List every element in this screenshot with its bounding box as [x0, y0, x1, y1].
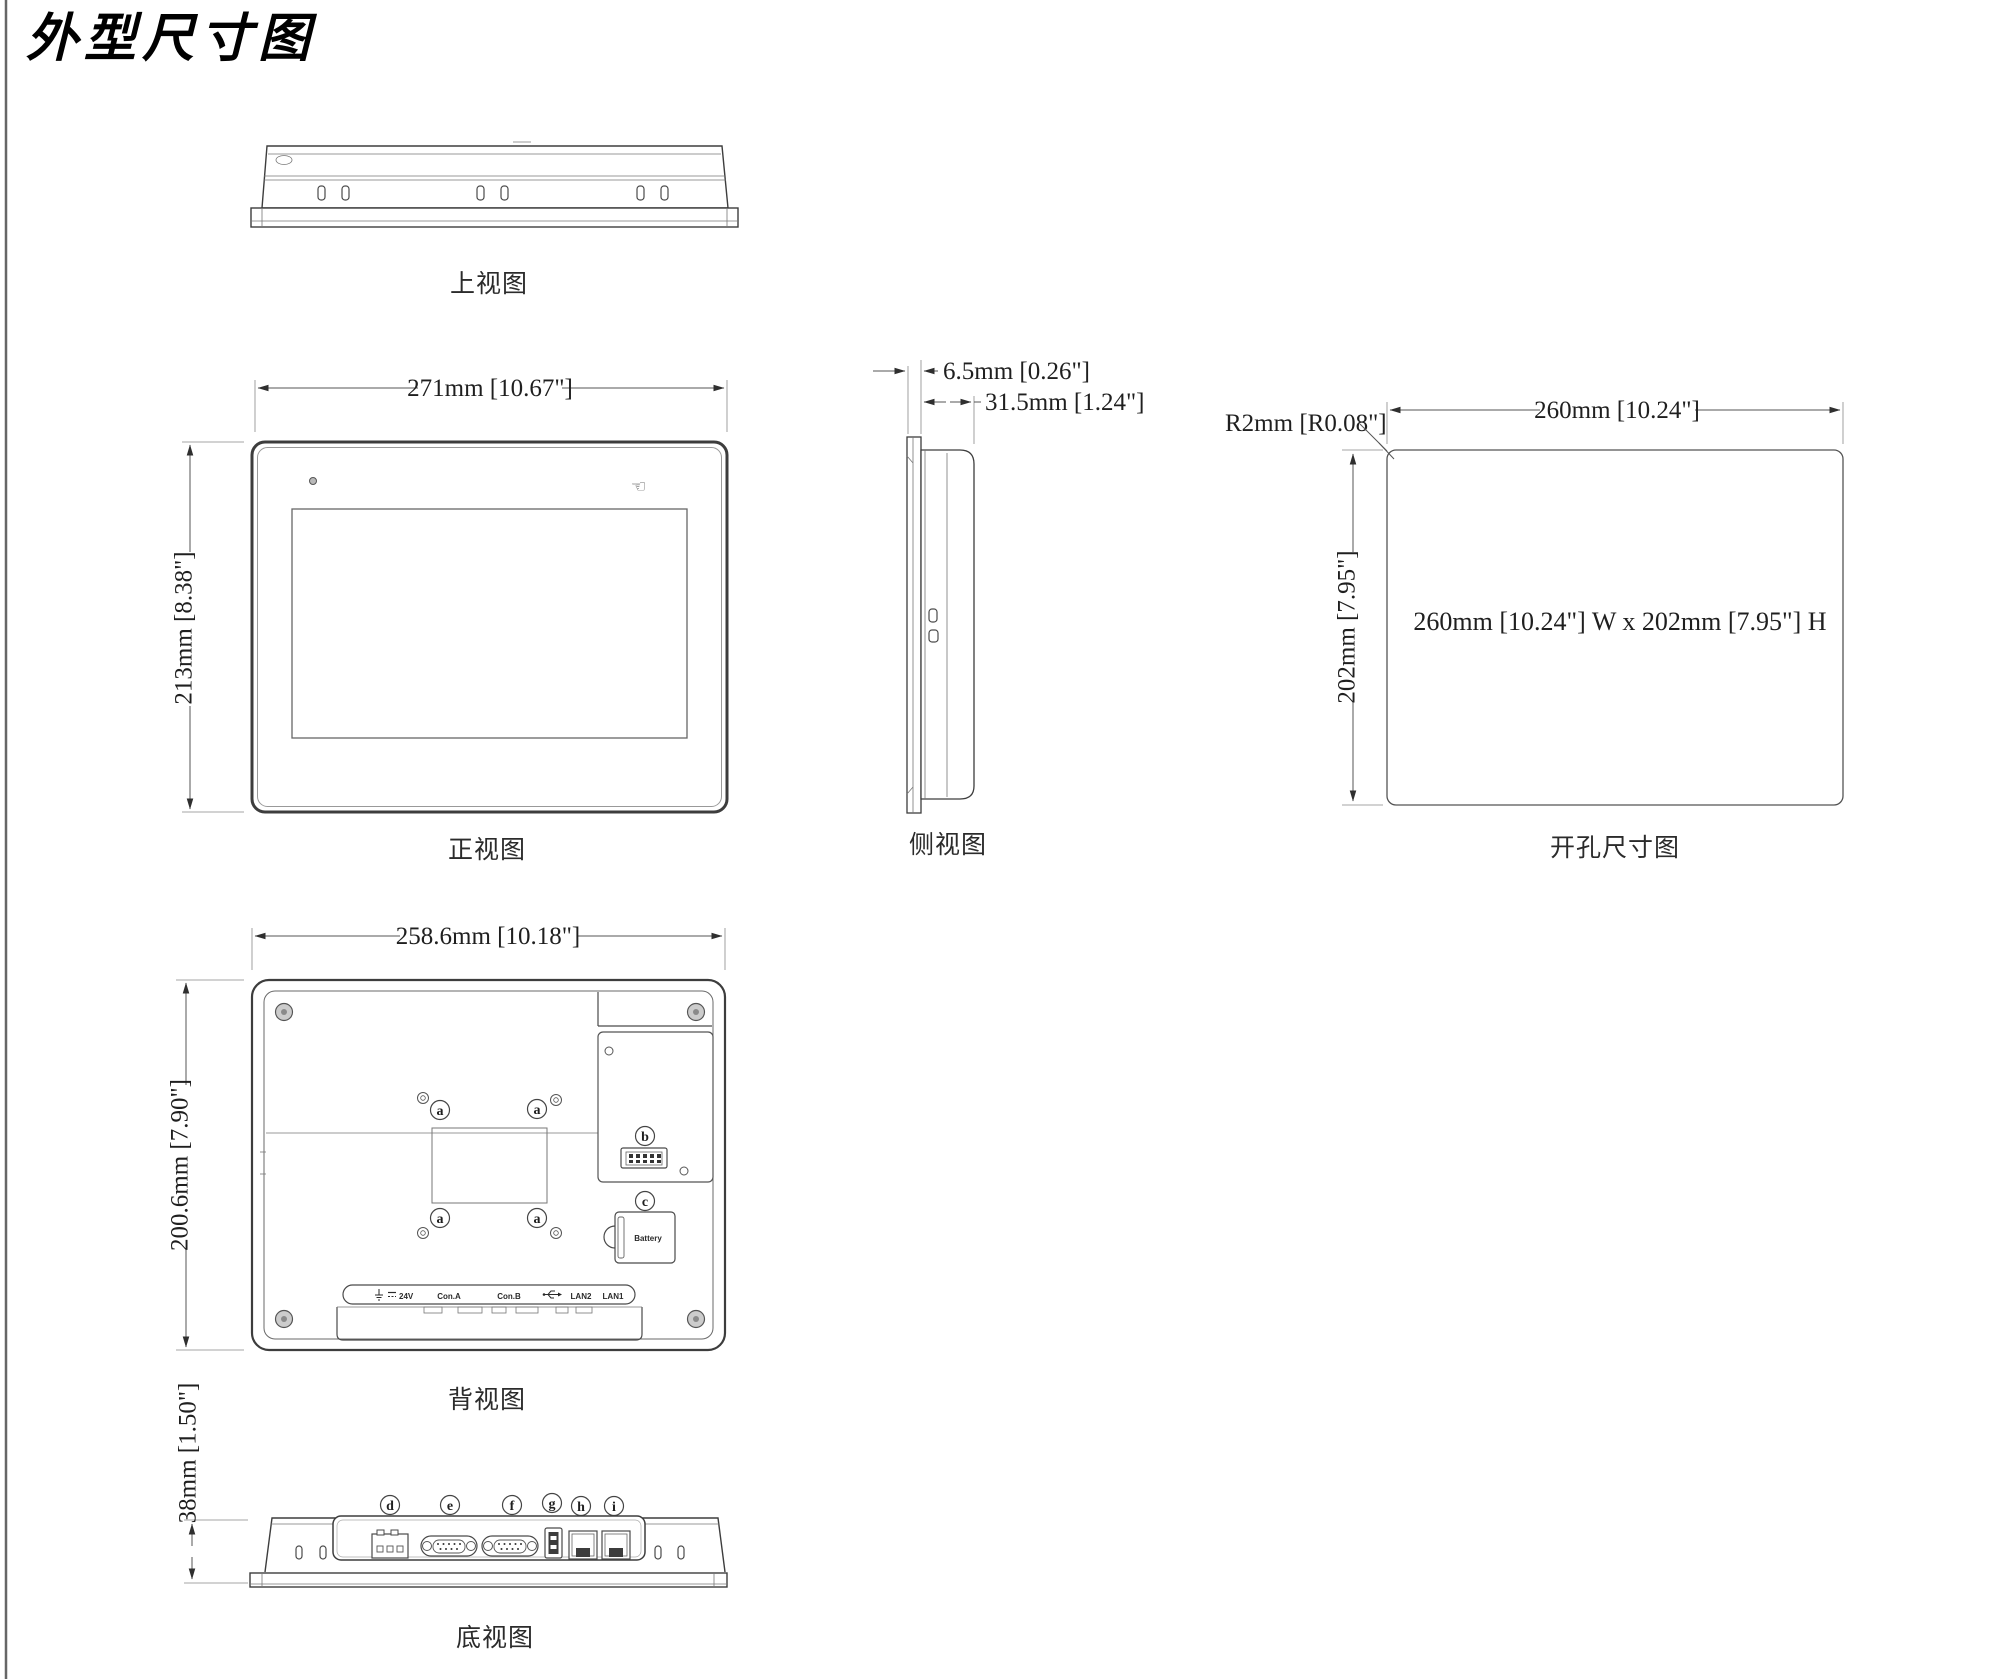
lan1-port [602, 1531, 630, 1559]
callout-b: b [636, 1127, 655, 1146]
side-bezel-dim-text: 6.5mm [0.26"] [943, 358, 1090, 385]
cutout-height-dimension: 202mm [7.95"] [1334, 450, 1383, 805]
bottom-height-dim-text: 38mm [1.50"] [175, 1383, 202, 1524]
side-depth-dimension: 31.5mm [1.24"] [924, 389, 1145, 444]
vesa-hole-icon [551, 1095, 562, 1106]
con-a-label: Con.A [437, 1292, 461, 1301]
front-width-dim-text: 271mm [10.67"] [407, 375, 573, 402]
power-led-icon [310, 478, 317, 485]
svg-text:b: b [641, 1130, 649, 1145]
screw-icon [688, 1004, 705, 1021]
cutout-note: 260mm [10.24"] W x 202mm [7.95"] H [1413, 607, 1826, 636]
lan1-label: LAN1 [603, 1292, 624, 1301]
vesa-hole-icon [418, 1093, 429, 1104]
vesa-hole-icon [418, 1228, 429, 1239]
front-height-dim-text: 213mm [8.38"] [171, 551, 198, 704]
bottom-view: 38mm [1.50"] d e f g h i [175, 1383, 727, 1652]
callout-d: d [381, 1496, 400, 1515]
svg-text:i: i [612, 1500, 616, 1515]
callout-c: c [636, 1192, 655, 1211]
side-rear-shell [921, 450, 974, 799]
rear-view-label: 背视图 [448, 1386, 526, 1414]
side-bezel [907, 437, 921, 813]
screw-icon [680, 1167, 688, 1175]
cutout-width-dimension: 260mm [10.24"] [1387, 397, 1843, 444]
dimension-drawing-page: 外型尺寸图 上视图 ☜ [0, 0, 1991, 1679]
touch-logo-icon: ☜ [631, 477, 646, 497]
lan2-label: LAN2 [571, 1292, 592, 1301]
rear-height-dimension: 200.6mm [7.90"] [167, 980, 244, 1350]
svg-text:f: f [510, 1499, 515, 1514]
bottom-view-label: 底视图 [456, 1624, 534, 1652]
cutout-radius-callout: R2mm [R0.08"] [1225, 410, 1394, 459]
front-view-label: 正视图 [448, 836, 526, 864]
battery-compartment: Battery [604, 1212, 675, 1263]
side-depth-dim-text: 31.5mm [1.24"] [985, 389, 1145, 416]
usb-port [545, 1528, 562, 1558]
cutout-view-label: 开孔尺寸图 [1550, 834, 1680, 862]
callout-a: a [528, 1209, 547, 1228]
cutout-height-dim-text: 202mm [7.95"] [1334, 550, 1361, 703]
port-label-strip: 24V Con.A Con.B LAN2 LAN1 [343, 1285, 635, 1304]
callout-e: e [441, 1496, 460, 1515]
screw-icon [605, 1047, 613, 1055]
bottom-bezel-edge [250, 1573, 727, 1587]
svg-text:e: e [447, 1499, 453, 1514]
svg-text:a: a [437, 1212, 444, 1227]
drawing-canvas: 外型尺寸图 上视图 ☜ [0, 0, 1991, 1679]
top-view-outline [251, 142, 738, 227]
power-voltage-label: 24V [399, 1292, 414, 1301]
side-view-label: 侧视图 [909, 831, 987, 859]
callout-g: g [543, 1494, 562, 1513]
side-view: 6.5mm [0.26"] 31.5mm [1.24"] 侧视图 [873, 358, 1145, 859]
rear-width-dim-text: 258.6mm [10.18"] [396, 923, 581, 950]
svg-text:c: c [642, 1195, 648, 1210]
callout-a: a [528, 1100, 547, 1119]
screw-icon [276, 1004, 293, 1021]
front-height-dimension: 213mm [8.38"] [171, 442, 244, 812]
top-view: 上视图 [251, 142, 738, 298]
screw-icon [276, 1311, 293, 1328]
db9-port-con-a [421, 1536, 477, 1556]
callout-i: i [605, 1497, 624, 1516]
lan2-port [569, 1531, 597, 1559]
svg-text:g: g [549, 1497, 556, 1512]
svg-text:a: a [534, 1212, 541, 1227]
svg-text:a: a [437, 1104, 444, 1119]
callout-h: h [572, 1497, 591, 1516]
rear-height-dim-text: 200.6mm [7.90"] [167, 1079, 194, 1251]
dip-switch [621, 1148, 667, 1168]
callout-f: f [503, 1496, 522, 1515]
page-title: 外型尺寸图 [26, 11, 318, 68]
power-terminal-port [372, 1530, 408, 1558]
svg-text:h: h [577, 1500, 585, 1515]
battery-label: Battery [634, 1234, 662, 1243]
callout-a: a [431, 1209, 450, 1228]
vesa-hole-icon [551, 1228, 562, 1239]
callout-a: a [431, 1101, 450, 1120]
cutout-width-dim-text: 260mm [10.24"] [1534, 397, 1700, 424]
bottom-height-dimension: 38mm [1.50"] [175, 1383, 248, 1583]
front-view: ☜ 271mm [10.67"] 213mm [8.38"] 正视图 [171, 375, 727, 864]
cutout-radius-text: R2mm [R0.08"] [1225, 410, 1387, 437]
svg-text:a: a [534, 1103, 541, 1118]
con-b-label: Con.B [497, 1292, 521, 1301]
cutout-view: 260mm [10.24"] W x 202mm [7.95"] H 260mm… [1225, 397, 1843, 862]
bottom-callouts: d e f g h i [381, 1494, 624, 1516]
db9-port-con-b [482, 1536, 538, 1556]
svg-text:d: d [386, 1499, 394, 1514]
rear-width-dimension: 258.6mm [10.18"] [252, 923, 725, 970]
rear-view: a a a a b c Battery [167, 923, 725, 1414]
front-width-dimension: 271mm [10.67"] [255, 375, 727, 432]
top-view-label: 上视图 [450, 270, 528, 298]
display-area [292, 509, 687, 738]
screw-icon [688, 1311, 705, 1328]
front-bezel-edge [251, 208, 738, 227]
